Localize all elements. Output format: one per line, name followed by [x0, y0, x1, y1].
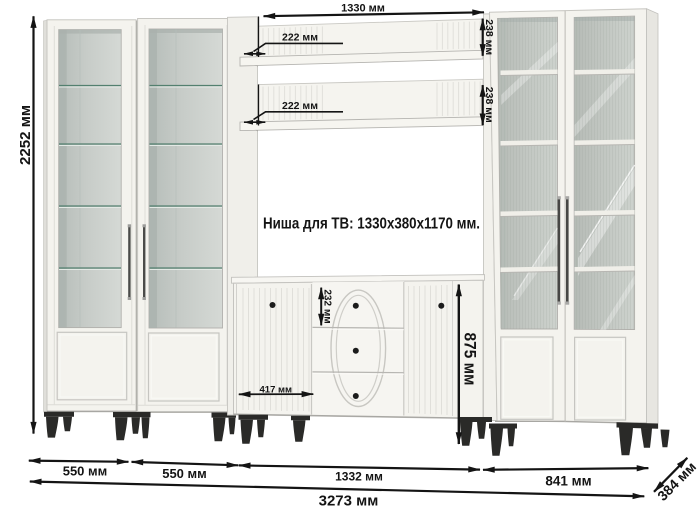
svg-text:550 мм: 550 мм [162, 466, 207, 481]
svg-text:238 мм: 238 мм [483, 87, 495, 123]
svg-text:3273 мм: 3273 мм [319, 493, 379, 510]
svg-text:1330 мм: 1330 мм [341, 2, 385, 14]
svg-text:841 мм: 841 мм [545, 474, 591, 489]
svg-text:875 мм: 875 мм [461, 333, 480, 386]
svg-text:Ниша для ТВ: 1330х380х1170 мм.: Ниша для ТВ: 1330х380х1170 мм. [263, 216, 480, 233]
svg-text:222 мм: 222 мм [282, 100, 318, 112]
svg-text:1332 мм: 1332 мм [335, 470, 383, 484]
svg-text:238 мм: 238 мм [483, 19, 495, 55]
svg-text:222 мм: 222 мм [282, 32, 318, 44]
svg-text:550 мм: 550 мм [63, 463, 108, 478]
svg-text:232 мм: 232 мм [321, 289, 332, 323]
svg-text:2252 мм: 2252 мм [17, 105, 34, 165]
